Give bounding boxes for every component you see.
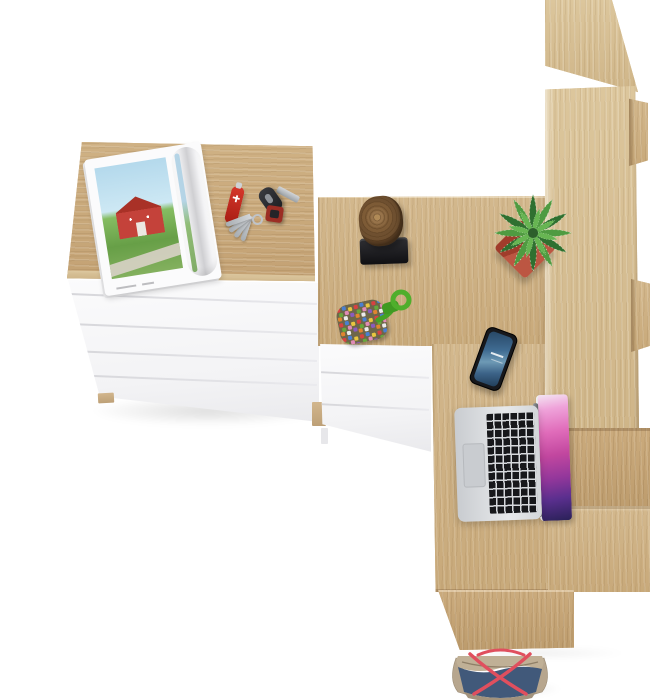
key-ring	[252, 214, 263, 225]
drawer-gap	[321, 403, 428, 411]
red-key-tag	[265, 205, 284, 223]
furniture-scene	[0, 0, 650, 700]
bookcase-top-surface	[545, 0, 638, 94]
laptop-keyboard	[486, 412, 537, 514]
tote-bag	[446, 640, 554, 700]
pedestal-drawer-front	[319, 344, 431, 454]
dresser-foot	[98, 393, 115, 404]
key-set	[236, 182, 302, 260]
paracord-loop	[334, 286, 414, 352]
laptop-trackpad	[462, 443, 486, 488]
tote-bag-graphic	[446, 640, 554, 700]
drawer-gap	[70, 374, 317, 386]
laptop-body	[454, 405, 542, 522]
laptop	[454, 394, 574, 528]
drawer-gap	[321, 371, 428, 379]
magazine	[84, 142, 222, 297]
red-barn	[114, 193, 166, 240]
succulent-leaves	[487, 187, 579, 279]
shelf-edge	[629, 96, 648, 166]
beaded-keychain	[334, 286, 414, 352]
pedestal-foot	[321, 428, 328, 444]
drawer-gap	[70, 350, 317, 362]
shelf-edge	[631, 276, 650, 352]
drawer-gap	[70, 323, 317, 335]
